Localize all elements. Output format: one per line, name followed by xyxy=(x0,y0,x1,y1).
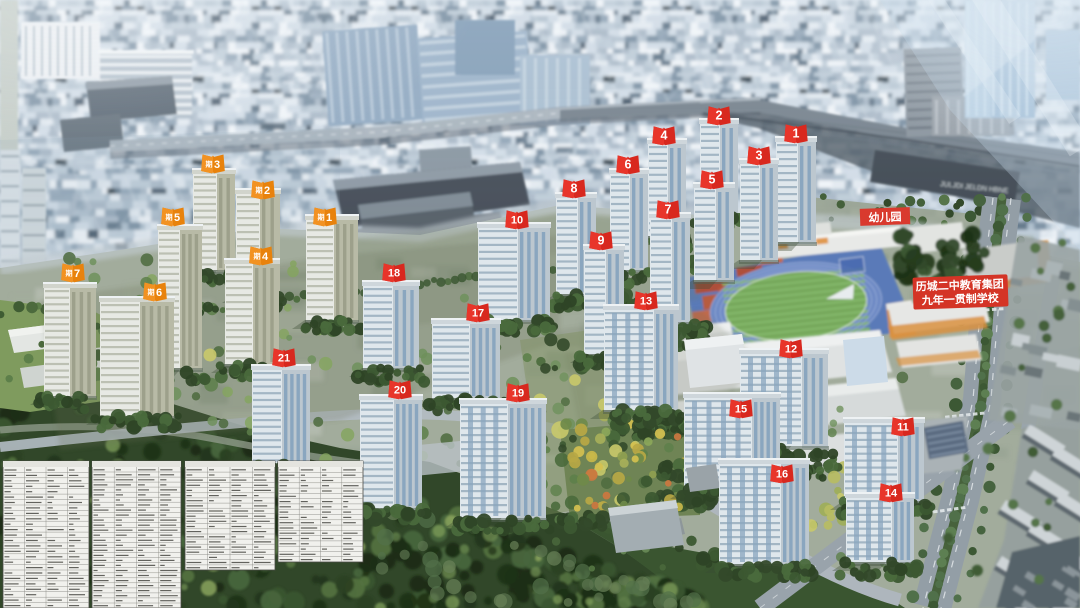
svg-text:10: 10 xyxy=(511,215,523,227)
svg-text:12: 12 xyxy=(785,344,797,356)
svg-text:幼儿园: 幼儿园 xyxy=(868,209,901,224)
svg-text:9: 9 xyxy=(598,234,605,248)
svg-text:5: 5 xyxy=(174,212,180,224)
svg-text:15: 15 xyxy=(735,404,747,416)
svg-text:2: 2 xyxy=(716,109,723,123)
svg-text:期: 期 xyxy=(66,269,73,278)
svg-text:3: 3 xyxy=(214,159,220,171)
svg-text:6: 6 xyxy=(625,158,632,172)
svg-text:2: 2 xyxy=(264,185,270,197)
svg-text:14: 14 xyxy=(885,488,898,500)
svg-text:17: 17 xyxy=(472,308,484,320)
svg-text:7: 7 xyxy=(665,203,672,217)
svg-text:13: 13 xyxy=(640,296,652,308)
svg-text:期: 期 xyxy=(256,186,263,195)
svg-text:1: 1 xyxy=(326,212,332,224)
svg-text:3: 3 xyxy=(756,149,763,163)
svg-text:4: 4 xyxy=(661,129,668,143)
svg-text:期: 期 xyxy=(206,160,213,169)
svg-text:21: 21 xyxy=(278,353,290,365)
svg-text:8: 8 xyxy=(571,182,578,196)
svg-text:18: 18 xyxy=(388,268,400,280)
svg-text:20: 20 xyxy=(394,385,406,397)
svg-text:期: 期 xyxy=(148,288,155,297)
svg-text:期: 期 xyxy=(166,213,173,222)
svg-text:5: 5 xyxy=(709,173,716,187)
svg-text:19: 19 xyxy=(512,388,524,400)
svg-text:1: 1 xyxy=(793,127,800,141)
svg-text:7: 7 xyxy=(74,268,80,280)
svg-text:4: 4 xyxy=(262,251,269,263)
svg-text:期: 期 xyxy=(254,252,261,261)
svg-text:16: 16 xyxy=(776,469,788,481)
svg-text:11: 11 xyxy=(897,422,909,434)
svg-text:期: 期 xyxy=(318,213,325,222)
svg-text:6: 6 xyxy=(156,287,162,299)
